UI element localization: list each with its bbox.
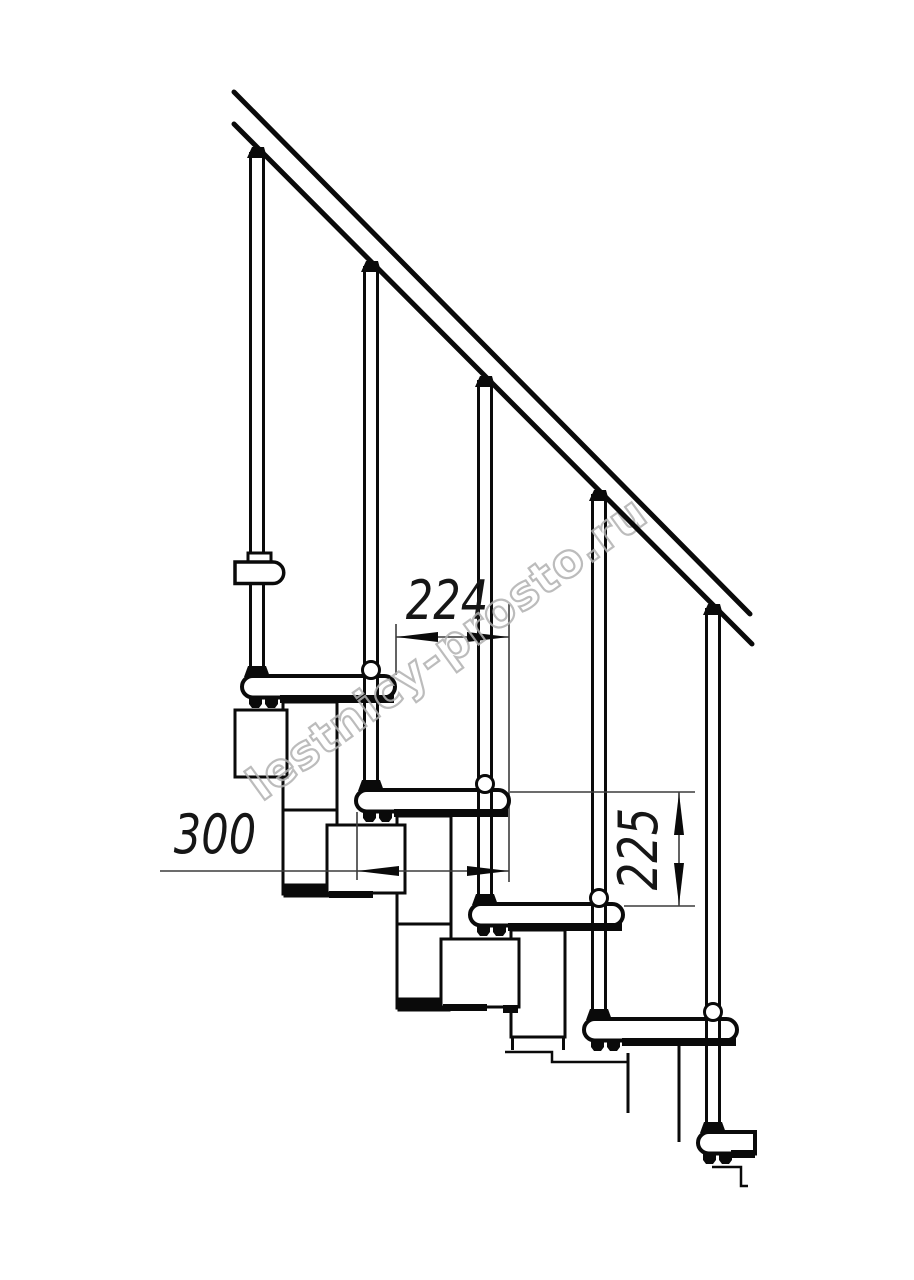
tread-4: [584, 1019, 737, 1041]
arrow-down-icon: [674, 863, 684, 905]
stair-technical-drawing: 224 300 225 lestnicy-prosto.ru: [0, 0, 914, 1280]
dim-300-label: 300: [174, 803, 256, 866]
drawing-page: 224 300 225 lestnicy-prosto.ru: [0, 0, 914, 1280]
baluster-1: [251, 152, 264, 676]
module-cube-2: [327, 825, 405, 898]
fitting-body: [235, 562, 284, 584]
handrail-end-fitting: [235, 553, 284, 584]
baluster-5: [707, 608, 720, 1132]
dim-225-label: 225: [607, 808, 670, 890]
module-column-4-cut: [628, 1046, 679, 1142]
arrow-right-icon: [467, 866, 509, 876]
arrow-up-icon: [674, 793, 684, 835]
module-cube-3: [441, 939, 519, 1013]
